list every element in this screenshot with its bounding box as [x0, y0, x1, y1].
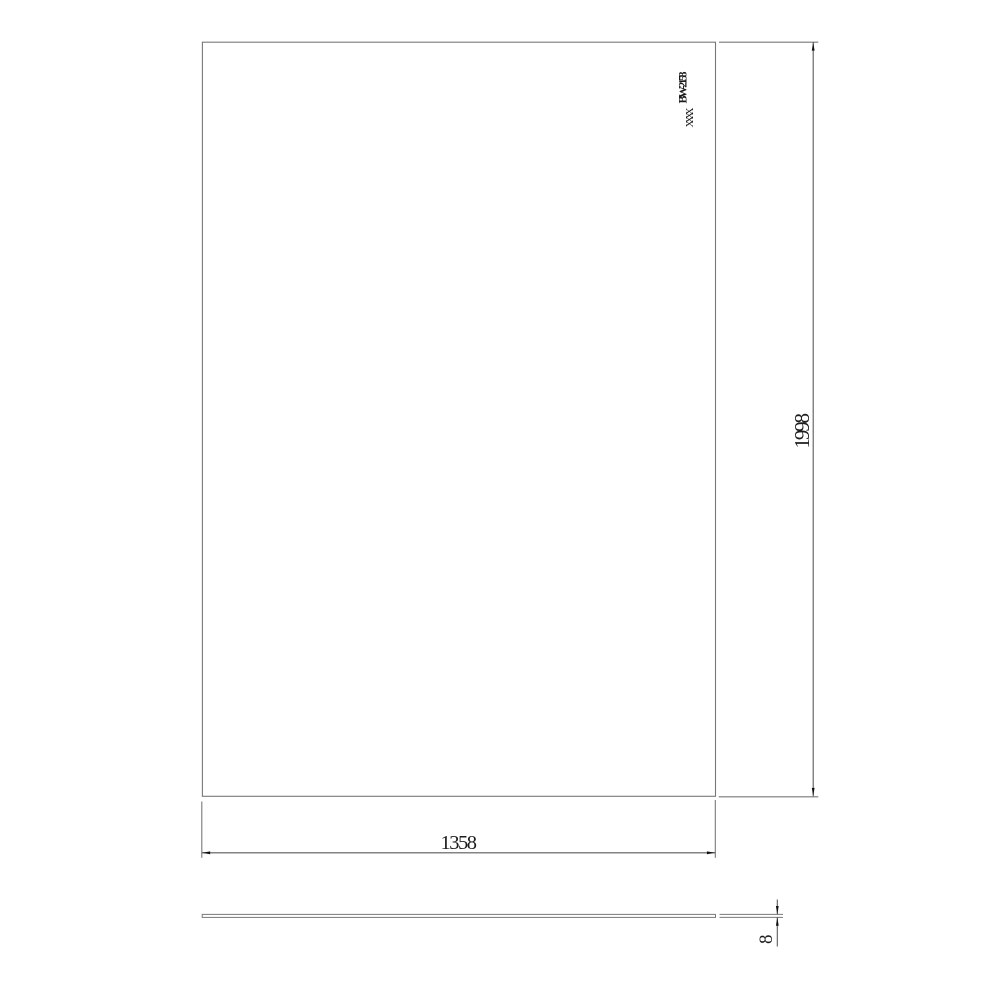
svg-text:1998: 1998 [790, 413, 814, 449]
svg-text:8: 8 [756, 935, 777, 945]
svg-text:BW-2158: BW-2158 [676, 72, 690, 104]
svg-text:1358: 1358 [441, 832, 478, 854]
svg-text:XXXX: XXXX [685, 107, 696, 127]
